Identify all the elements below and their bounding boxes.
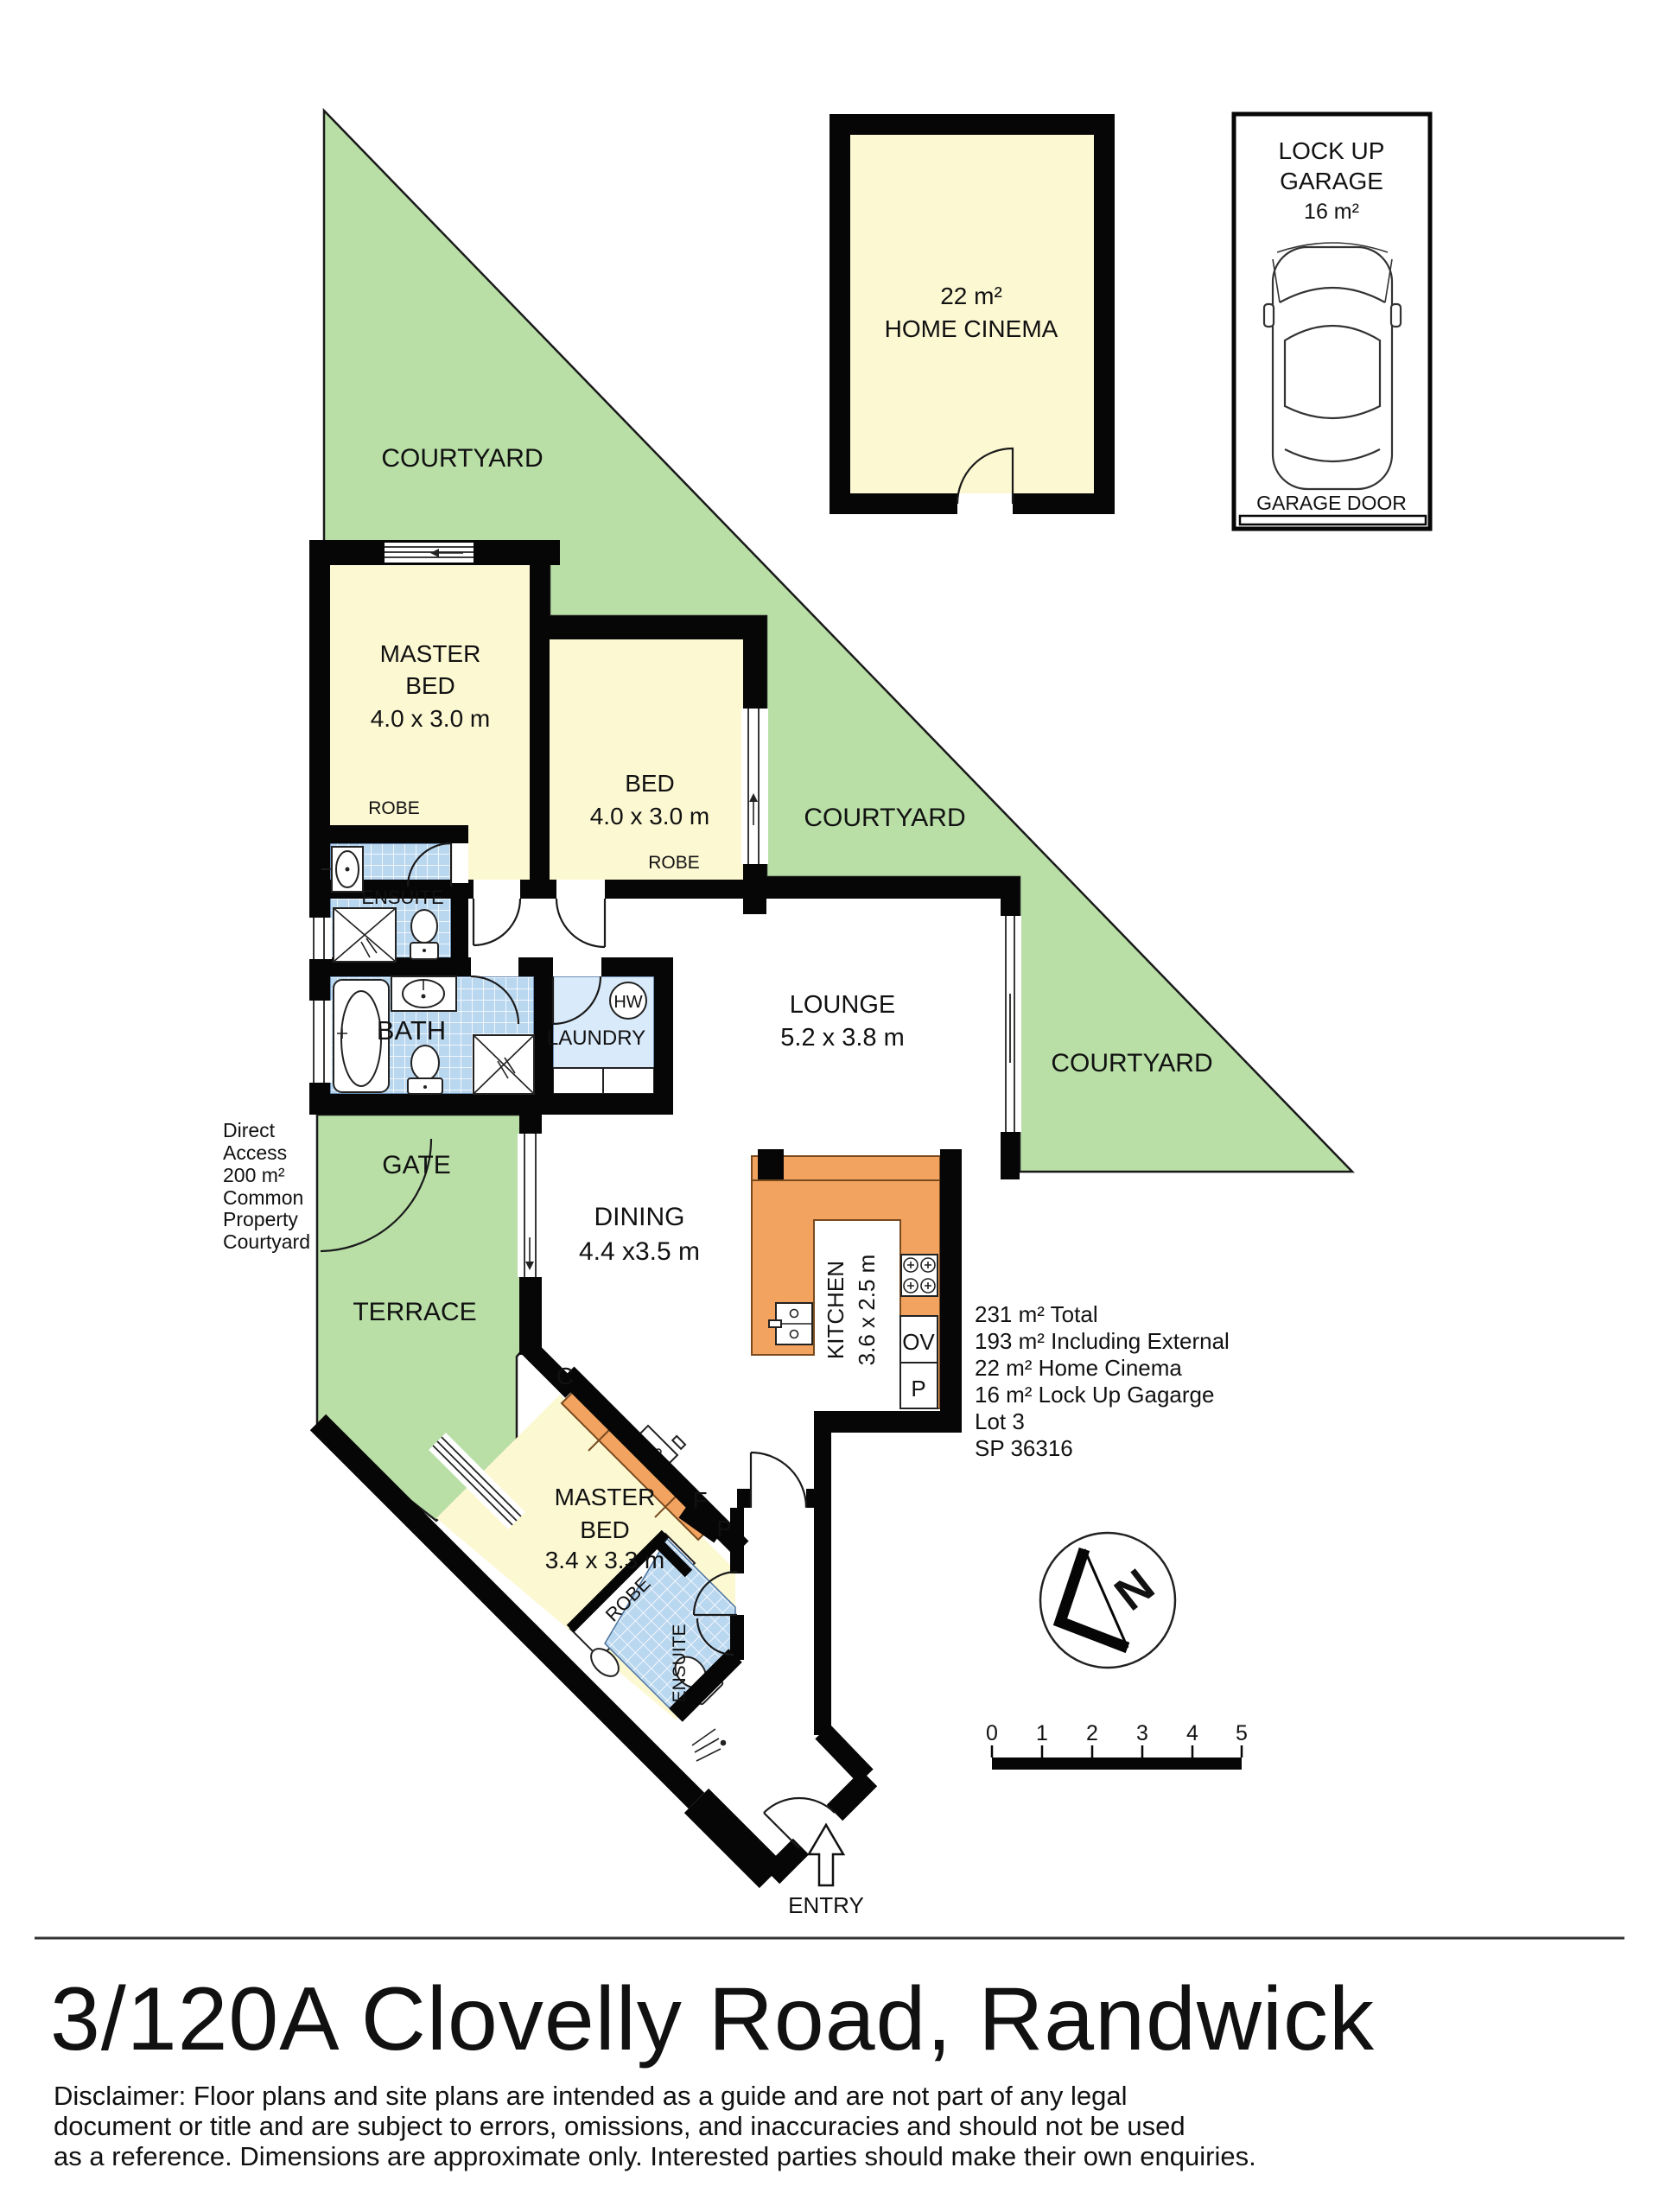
- garage-area: 16 m²: [1304, 200, 1359, 224]
- summary-line: 22 m² Home Cinema: [975, 1355, 1182, 1381]
- ensuite-upper-label: ENSUITE: [361, 887, 443, 908]
- bed-label: BED: [625, 770, 675, 797]
- ensuite-lower-label: ENSUITE: [670, 1624, 690, 1702]
- shower-lower-icon: [692, 1729, 726, 1761]
- courtyard-middle-label: COURTYARD: [804, 804, 965, 832]
- scale-tick-label: 2: [1086, 1721, 1098, 1745]
- home-cinema-area: 22 m²: [940, 283, 1002, 309]
- window-bed-right: [741, 709, 768, 864]
- cupboard-label: C: [556, 1363, 574, 1389]
- direct-access-line: 200 m²: [223, 1164, 285, 1186]
- home-cinema-label: HOME CINEMA: [885, 315, 1058, 342]
- sink-tap: [672, 1436, 685, 1449]
- laundry-cupboard: [603, 1068, 654, 1094]
- laundry-label: LAUNDRY: [547, 1027, 645, 1050]
- compass-north-label: N: [1105, 1559, 1164, 1620]
- master-lower-label-1: MASTER: [555, 1484, 656, 1510]
- door-dining-terrace: [518, 1134, 543, 1277]
- toilet-upper-icon: [410, 910, 438, 959]
- gate-label: GATE: [382, 1151, 450, 1179]
- scale-tick-label: 5: [1236, 1721, 1248, 1745]
- bed-floor: [550, 639, 743, 895]
- master-upper-label-1: MASTER: [380, 640, 481, 667]
- kitchen-sink-icon: [769, 1303, 812, 1344]
- direct-access-line: Property: [223, 1208, 298, 1230]
- master-upper-dims: 4.0 x 3.0 m: [371, 705, 491, 732]
- garage-door-label: GARAGE DOOR: [1256, 492, 1407, 514]
- summary-line: 231 m² Total: [975, 1301, 1098, 1327]
- entry-marker: ENTRY: [788, 1825, 864, 1918]
- lounge-dims: 5.2 x 3.8 m: [780, 1024, 904, 1052]
- kitchen-label: KITCHEN: [823, 1261, 849, 1359]
- fridge-label: F: [692, 1487, 707, 1514]
- master-lower-label-2: BED: [580, 1516, 630, 1543]
- courtyard-upper-label: COURTYARD: [381, 444, 543, 473]
- summary-line: Lot 3: [975, 1408, 1025, 1434]
- disclaimer-line: as a reference. Dimensions are approxima…: [54, 2141, 1256, 2171]
- bath-toilet-icon: [408, 1046, 442, 1094]
- door-bed: [556, 899, 605, 947]
- scale-bar: 0 1 2 3 4 5: [986, 1721, 1248, 1770]
- door-master-upper: [474, 899, 520, 945]
- entry-label: ENTRY: [788, 1892, 864, 1918]
- oven-label: OV: [902, 1329, 935, 1355]
- summary-line: 193 m² Including External: [975, 1328, 1230, 1354]
- pantry2-label: P: [716, 1516, 731, 1541]
- bed-dims: 4.0 x 3.0 m: [590, 803, 710, 829]
- direct-access-line: Courtyard: [223, 1230, 310, 1253]
- cooktop-icon: [901, 1255, 938, 1296]
- floor-plan-page: N 0 1 2 3 4 5 ENTRY COURTYARD COURTYARD …: [0, 0, 1659, 2212]
- floor-plan-svg: N 0 1 2 3 4 5 ENTRY COURTYARD COURTYARD …: [0, 0, 1659, 2212]
- master-lower-dims: 3.4 x 3.3 m: [545, 1547, 665, 1573]
- master-upper-label-2: BED: [405, 672, 455, 699]
- garage-label-2: GARAGE: [1280, 168, 1383, 194]
- courtyard-right-label: COURTYARD: [1051, 1049, 1212, 1077]
- summary-line: 16 m² Lock Up Gagarge: [975, 1382, 1214, 1408]
- summary-line: SP 36316: [975, 1435, 1073, 1461]
- direct-access-line: Direct: [223, 1119, 276, 1141]
- terrace-label: TERRACE: [353, 1298, 476, 1326]
- footer: 3/120A Clovelly Road, Randwick Disclaime…: [35, 1938, 1624, 2171]
- scale-tick-label: 1: [1036, 1721, 1048, 1745]
- disclaimer-line: Disclaimer: Floor plans and site plans a…: [54, 2081, 1127, 2111]
- window-master-top: [385, 543, 474, 563]
- window-lounge-right: [999, 916, 1021, 1132]
- dining-dims: 4.4 x3.5 m: [579, 1237, 700, 1266]
- lounge-label: LOUNGE: [790, 991, 895, 1019]
- robe-bed-label: ROBE: [648, 853, 700, 873]
- compass: N: [1040, 1533, 1175, 1668]
- window-left-1: [308, 918, 332, 959]
- home-cinema-floor: [829, 114, 1115, 514]
- disclaimer-line: document or title and are subject to err…: [54, 2111, 1185, 2141]
- kitchen-dims: 3.6 x 2.5 m: [854, 1255, 880, 1366]
- window-left-2: [308, 1001, 332, 1083]
- direct-access-line: Common: [223, 1186, 303, 1209]
- scale-tick-label: 4: [1186, 1721, 1198, 1745]
- laundry-cupboard: [553, 1068, 603, 1094]
- bath-shower-icon: [474, 1035, 534, 1094]
- kitchen-wall-post: [758, 1149, 784, 1179]
- direct-access-line: Access: [223, 1141, 287, 1164]
- hot-water-label: HW: [613, 993, 642, 1012]
- pantry-label: P: [911, 1376, 925, 1402]
- scale-tick-label: 0: [986, 1721, 998, 1745]
- page-title: 3/120A Clovelly Road, Randwick: [50, 1969, 1375, 2069]
- shower-upper-icon: [334, 908, 396, 962]
- bath-label: BATH: [377, 1015, 446, 1046]
- garage-label-1: LOCK UP: [1279, 137, 1385, 164]
- scale-tick-label: 3: [1136, 1721, 1148, 1745]
- robe-upper-label: ROBE: [368, 798, 420, 818]
- dining-label: DINING: [594, 1203, 685, 1231]
- car-icon: [1264, 243, 1401, 489]
- entry-arrow-icon: [809, 1825, 843, 1885]
